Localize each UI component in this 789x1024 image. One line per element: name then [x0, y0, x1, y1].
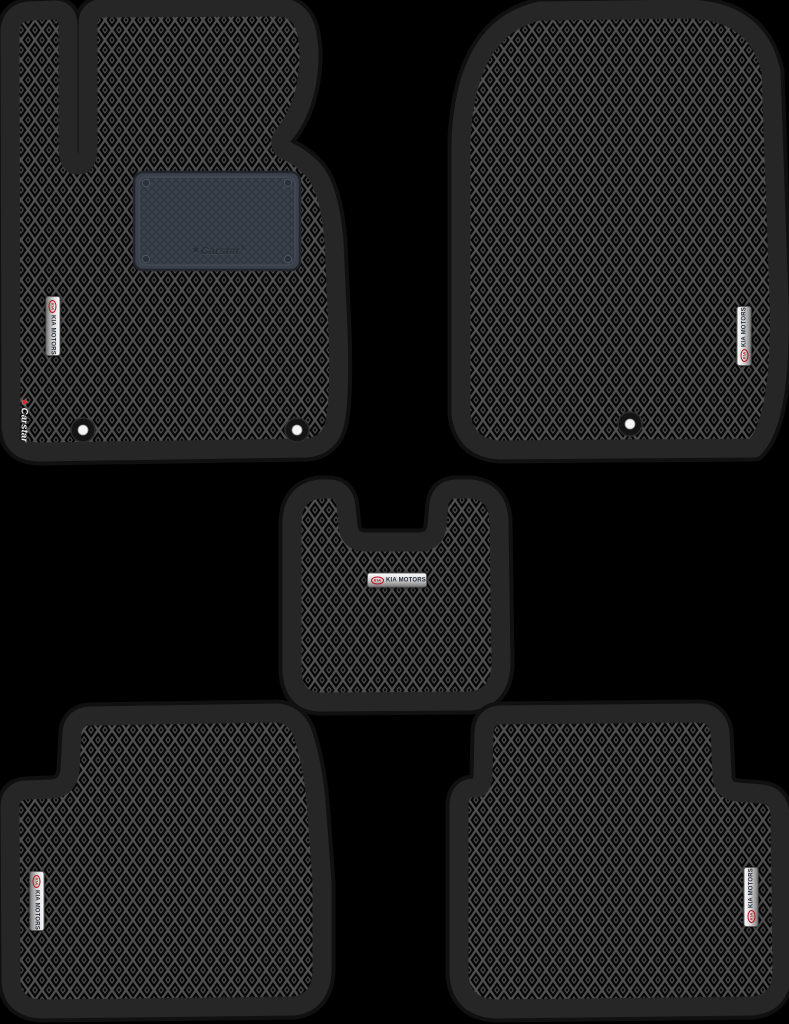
heel-pad-rivet [284, 179, 291, 186]
kia-logo: KIA [49, 300, 57, 313]
star-icon: ★ [191, 246, 200, 256]
heel-pad-logo: ★ Carstar ® [191, 246, 245, 257]
fastener-hole [618, 412, 642, 436]
heel-pad-brand-text: Carstar [201, 246, 240, 257]
carstar-edge-logo: ★ Carstar [18, 390, 31, 450]
kia-badge-label: KIA MOTORS [386, 577, 426, 583]
edge-logo-brand-text: Carstar [19, 408, 29, 443]
front-passenger-mat [461, 9, 779, 450]
heel-pad-rivet [284, 255, 291, 262]
floor-mats-graphic [0, 0, 789, 1024]
kia-logo: KIA [371, 576, 384, 584]
kia-badge-label: KIA MOTORS [741, 307, 747, 347]
kia-logo: KIA [740, 349, 748, 362]
kia-badge-driver-mat: KIA KIA MOTORS [46, 296, 61, 356]
kia-badge-rear-left-mat: KIA KIA MOTORS [30, 871, 45, 931]
kia-badge-label: KIA MOTORS [34, 890, 40, 930]
heel-pad-rivet [142, 179, 149, 186]
center-tunnel-mat [292, 489, 501, 702]
rear-left-mat [10, 713, 322, 1009]
kia-badge-label: KIA MOTORS [50, 315, 56, 355]
kia-badge-label: KIA MOTORS [748, 868, 754, 908]
kia-logo: KIA [33, 875, 41, 888]
heel-pad-rivet [142, 255, 149, 262]
kia-badge-center-mat: KIA KIA MOTORS [367, 573, 427, 588]
product-photo: ★ Carstar ® ★ Carstar KIA KIA MOTORS KIA… [0, 0, 789, 1024]
kia-logo: KIA [747, 910, 755, 923]
registered-mark: ® [241, 246, 245, 251]
front-driver-mat [10, 7, 339, 452]
fastener-hole [285, 418, 309, 442]
kia-badge-rear-right-mat: KIA KIA MOTORS [744, 867, 759, 927]
kia-badge-passenger-mat: KIA KIA MOTORS [737, 306, 752, 366]
rear-right-mat [459, 713, 782, 1009]
star-icon: ★ [19, 398, 29, 407]
fastener-hole [71, 418, 95, 442]
